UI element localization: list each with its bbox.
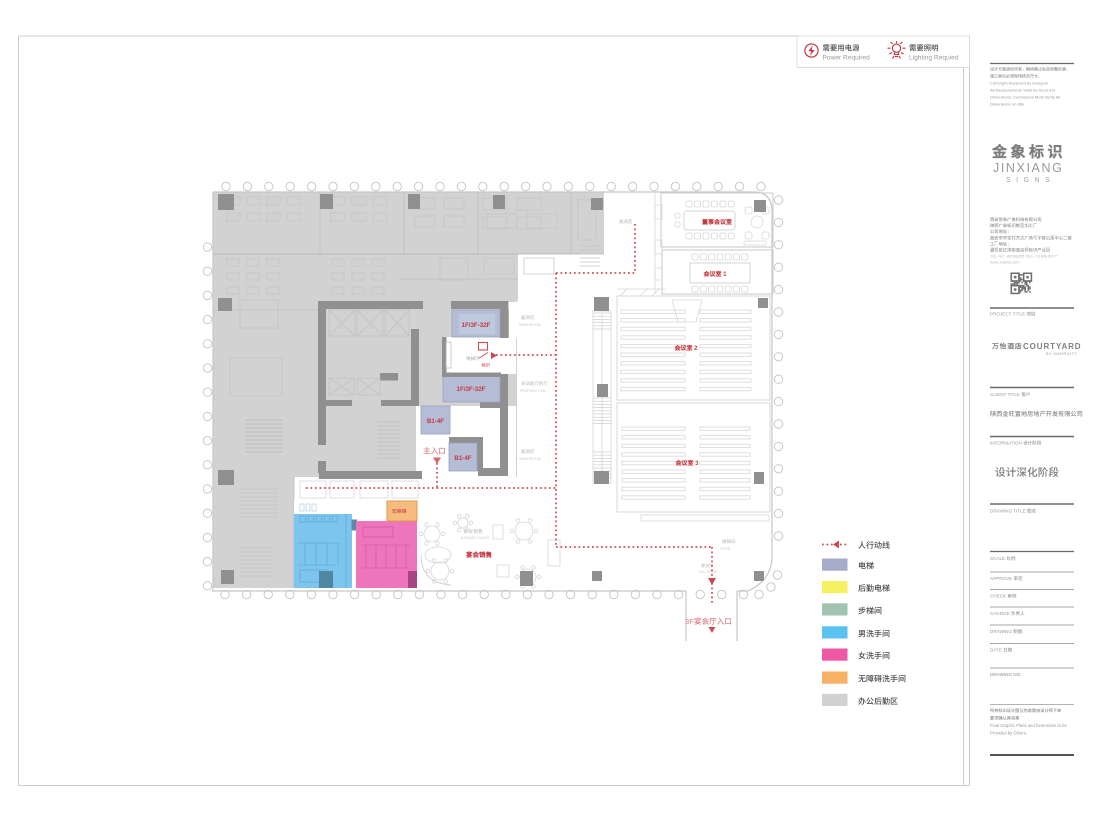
svg-text:JINXIANG: JINXIANG — [993, 157, 1063, 176]
svg-text:西安维象广告科技有限公司: 西安维象广告科技有限公司 — [990, 216, 1042, 223]
svg-text:无障碍: 无障碍 — [392, 508, 407, 515]
svg-text:Final Graphic Plans and Extens: Final Graphic Plans and Extensions to be — [990, 723, 1067, 729]
svg-text:工厂地址：: 工厂地址： — [990, 241, 1011, 247]
svg-text:无障碍洗手间: 无障碍洗手间 — [858, 674, 906, 685]
svg-text:设计方案版权所有，期间禁止私自转载抄袭，: 设计方案版权所有，期间禁止私自转载抄袭， — [990, 67, 1070, 73]
svg-text:SCALE 比例: SCALE 比例 — [990, 556, 1016, 562]
svg-text:BANQUET SALES: BANQUET SALES — [461, 535, 490, 540]
svg-text:1F/3F-32F: 1F/3F-32F — [462, 320, 491, 329]
svg-text:要求确认其效果: 要求确认其效果 — [990, 716, 1020, 722]
svg-text:万怡酒店: 万怡酒店 — [991, 341, 1022, 351]
svg-text:Dimensions; Contractors Must V: Dimensions; Contractors Must Verify All — [990, 95, 1060, 101]
svg-text:Provided by Others.: Provided by Others. — [990, 731, 1027, 737]
svg-text:西安市李家村万达广场写字楼公寓中心二楼: 西安市李家村万达广场写字楼公寓中心二楼 — [990, 234, 1072, 241]
svg-text:灞桥区红旗街道高桥标识产业园: 灞桥区红旗街道高桥标识产业园 — [990, 247, 1050, 254]
svg-text:Dimensions on Site: Dimensions on Site — [990, 102, 1025, 108]
svg-text:B1-4F: B1-4F — [427, 416, 444, 425]
svg-text:陕西广安标识制造加工厂: 陕西广安标识制造加工厂 — [990, 222, 1038, 229]
svg-text:DRAWING NO.: DRAWING NO. — [990, 672, 1021, 678]
svg-text:陕西金旺置地房地产开发有限公司: 陕西金旺置地房地产开发有限公司 — [990, 409, 1083, 418]
svg-text:www.xajxbs.com: www.xajxbs.com — [990, 260, 1020, 266]
svg-text:施工单位必须现场核实尺寸。: 施工单位必须现场核实尺寸。 — [990, 74, 1042, 80]
svg-text:CLIENT TITLE 客户: CLIENT TITLE 客户 — [990, 392, 1030, 398]
svg-text:主入口: 主入口 — [423, 446, 446, 457]
svg-text:APPROVE 审定: APPROVE 审定 — [990, 576, 1023, 582]
svg-text:TEL NO. 88798355 TEL+ CHN6 50: TEL NO. 88798355 TEL+ CHN6 5077 — [990, 254, 1058, 260]
svg-text:STAIR: STAIR — [720, 547, 731, 552]
svg-text:办公后勤区: 办公后勤区 — [858, 696, 898, 707]
svg-text:会议室 2: 会议室 2 — [673, 343, 698, 352]
svg-text:电梯: 电梯 — [858, 561, 874, 572]
svg-text:BALLROOM: BALLROOM — [699, 569, 717, 574]
svg-text:INFORMATION 设计阶段: INFORMATION 设计阶段 — [990, 441, 1042, 447]
svg-text:人行动线: 人行动线 — [858, 540, 890, 551]
svg-text:Power Required: Power Required — [823, 52, 871, 62]
svg-text:CHECK 审核: CHECK 审核 — [990, 594, 1017, 600]
svg-text:COURTYARD: COURTYARD — [1023, 341, 1081, 352]
svg-text:DATE 日期: DATE 日期 — [990, 648, 1013, 654]
svg-text:SIGNS: SIGNS — [1006, 175, 1055, 185]
svg-text:女洗手间: 女洗手间 — [858, 651, 890, 662]
svg-text:步梯间: 步梯间 — [858, 605, 882, 616]
svg-text:CoPyright Reserved by Designer: CoPyright Reserved by Designer — [990, 81, 1049, 87]
svg-text:B1-4F: B1-4F — [454, 453, 471, 462]
svg-text:多功能厅前厅: 多功能厅前厅 — [521, 381, 548, 387]
svg-text:PROJECT TITLE 项目: PROJECT TITLE 项目 — [990, 312, 1036, 318]
svg-text:1F/3F-32F: 1F/3F-32F — [457, 384, 486, 393]
svg-text:会议室 1: 会议室 1 — [702, 269, 727, 278]
svg-text:盥洗区: 盥洗区 — [521, 315, 535, 321]
svg-text:电梯厅: 电梯厅 — [466, 356, 480, 362]
svg-text:楼梯间: 楼梯间 — [722, 539, 736, 545]
svg-text:WASHROOM: WASHROOM — [519, 323, 541, 328]
svg-text:Lighting Requied: Lighting Requied — [909, 52, 959, 62]
svg-text:公司地址：: 公司地址： — [990, 229, 1011, 235]
svg-text:宴会销售: 宴会销售 — [466, 549, 493, 559]
svg-text:BY MARRIOTT: BY MARRIOTT — [1046, 352, 1078, 357]
svg-text:设计深化阶段: 设计深化阶段 — [995, 465, 1059, 480]
svg-text:后勤电梯: 后勤电梯 — [858, 583, 890, 594]
svg-text:标识: 标识 — [482, 363, 490, 369]
svg-text:DRAWING 制图: DRAWING 制图 — [990, 629, 1023, 635]
svg-text:董事会议室: 董事会议室 — [702, 217, 732, 226]
svg-text:所有标识设计图及内容需由设计师下单: 所有标识设计图及内容需由设计师下单 — [990, 708, 1061, 714]
svg-text:3F宴会厅入口: 3F宴会厅入口 — [685, 616, 732, 627]
svg-text:会议室 3: 会议室 3 — [674, 458, 699, 467]
svg-text:WASHROOM: WASHROOM — [519, 457, 541, 462]
svg-text:All Measurements Shall be Acco: All Measurements Shall be Accord to — [990, 88, 1056, 94]
svg-text:PREFUNCTION: PREFUNCTION — [520, 389, 546, 394]
svg-text:CHARGE 负责人: CHARGE 负责人 — [990, 611, 1025, 617]
svg-text:DRAWING TITLE 图名: DRAWING TITLE 图名 — [990, 509, 1036, 515]
svg-text:盥洗区: 盥洗区 — [521, 449, 535, 455]
svg-text:盥洗区: 盥洗区 — [619, 219, 633, 225]
svg-text:男洗手间: 男洗手间 — [858, 628, 890, 639]
